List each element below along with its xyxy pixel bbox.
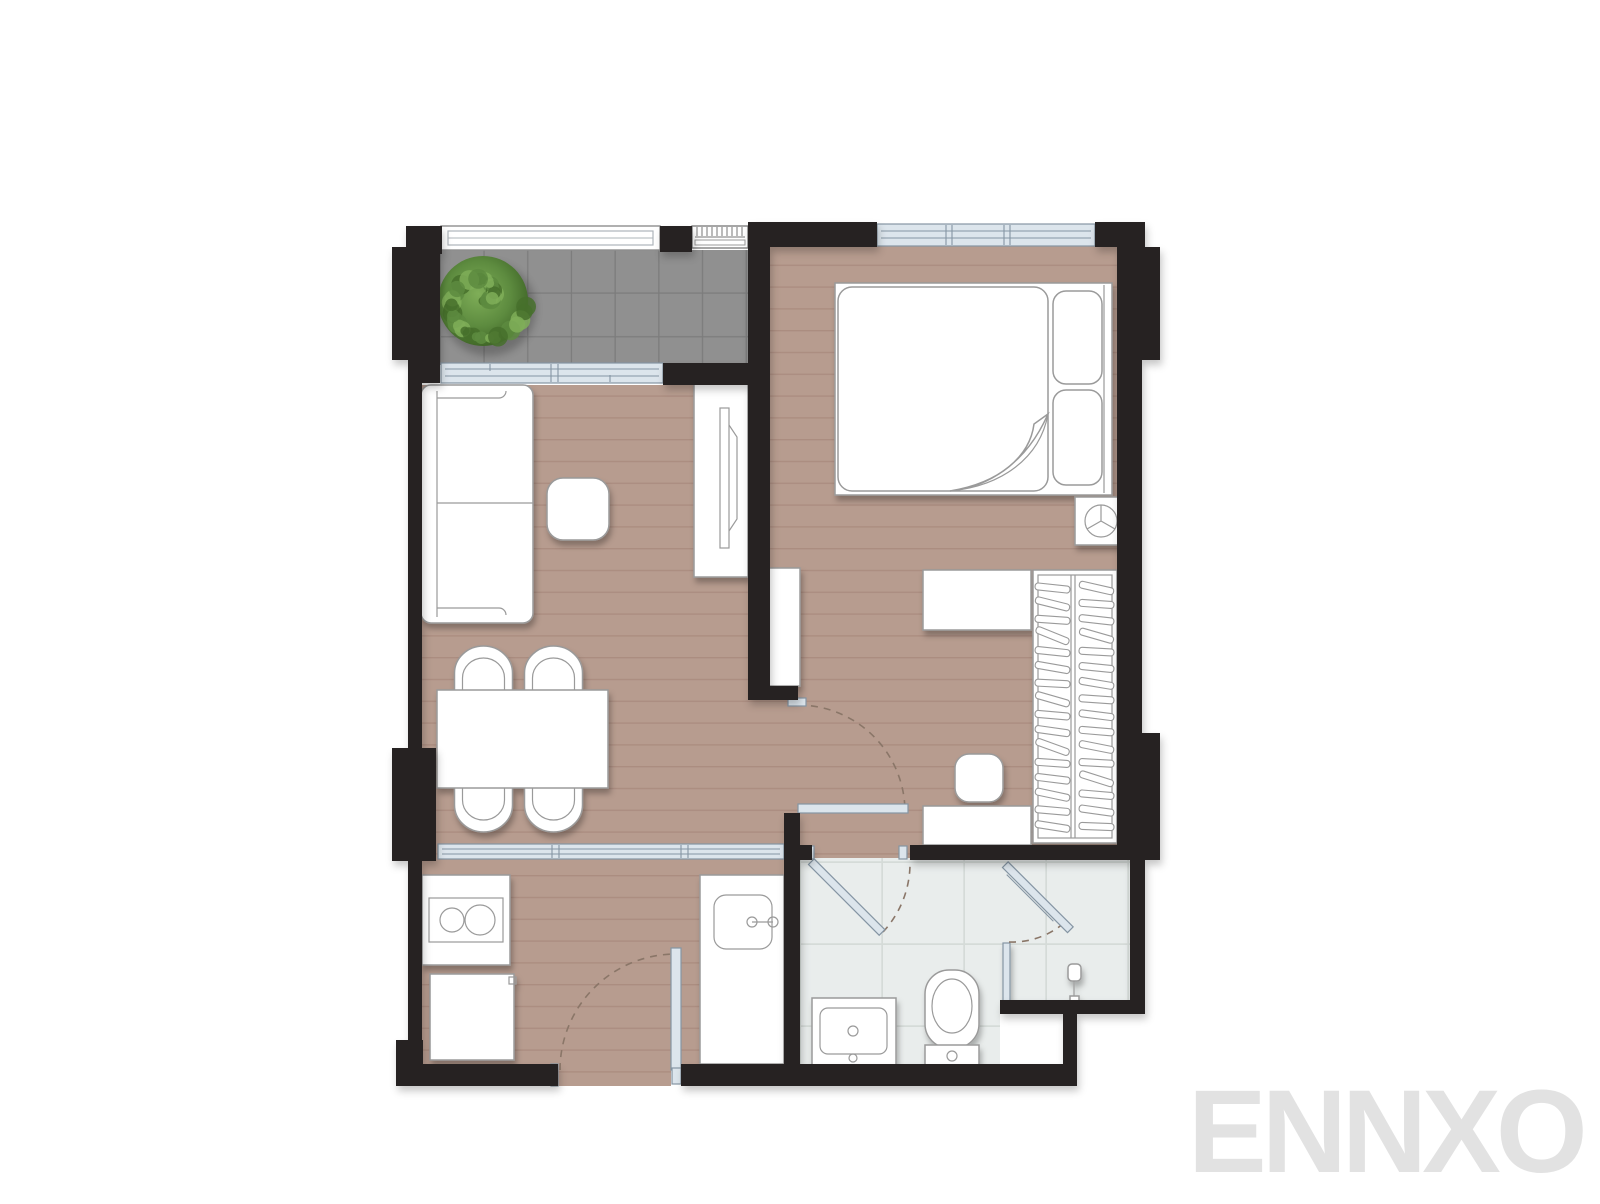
ac-condenser-icon	[692, 226, 748, 248]
bedroom-door-leaf	[798, 804, 908, 813]
wall-segment	[660, 226, 692, 252]
pillow-icon	[1053, 291, 1102, 384]
floorplan-page: ENNXO	[0, 0, 1600, 1204]
stool-icon	[955, 754, 1003, 802]
coffee-table-icon	[547, 478, 609, 540]
bathroom-doorway-floor	[812, 845, 910, 860]
wall-segment	[681, 1064, 1077, 1086]
shower-glass-partition	[1003, 943, 1010, 1001]
wall-segment	[748, 222, 770, 700]
double-bed-icon	[835, 283, 1112, 495]
dining-table-icon	[437, 690, 608, 788]
desk-icon	[923, 570, 1031, 630]
pillow-icon	[1053, 390, 1102, 485]
glass-railing	[441, 226, 660, 250]
wall-segment	[1130, 858, 1145, 1014]
wall-segment	[397, 1064, 558, 1086]
wall-segment	[408, 383, 422, 1064]
wall-segment	[748, 686, 798, 700]
entrance-threshold-floor	[558, 1064, 671, 1086]
wardrobe-with-hangers-icon	[1033, 570, 1117, 843]
wall-segment	[784, 845, 812, 860]
wall-segment	[1000, 1000, 1145, 1014]
hob-counter	[422, 875, 510, 965]
wall-segment	[762, 222, 877, 247]
floorplan-drawing	[0, 0, 1600, 1204]
entrance-door-leaf	[671, 948, 681, 1070]
wall-segment	[1063, 1014, 1077, 1086]
base-cabinet-icon	[430, 974, 516, 1060]
dresser-icon	[923, 806, 1031, 845]
kitchen-glass-partition	[438, 844, 784, 859]
wall-segment	[663, 363, 748, 385]
sofa-icon	[421, 385, 533, 623]
tv-console-icon	[694, 381, 748, 577]
column	[1142, 247, 1160, 360]
column	[1142, 733, 1160, 860]
balcony-sliding-window	[441, 363, 663, 383]
bedroom-window	[877, 224, 1095, 246]
vanity-basin-icon	[812, 998, 896, 1066]
column	[392, 247, 436, 360]
sink-counter	[700, 875, 784, 1064]
wall-segment	[910, 845, 1160, 860]
toilet-icon	[925, 970, 979, 1068]
wall-segment	[1117, 242, 1142, 845]
watermark: ENNXO	[1188, 1072, 1593, 1192]
column	[392, 748, 436, 861]
